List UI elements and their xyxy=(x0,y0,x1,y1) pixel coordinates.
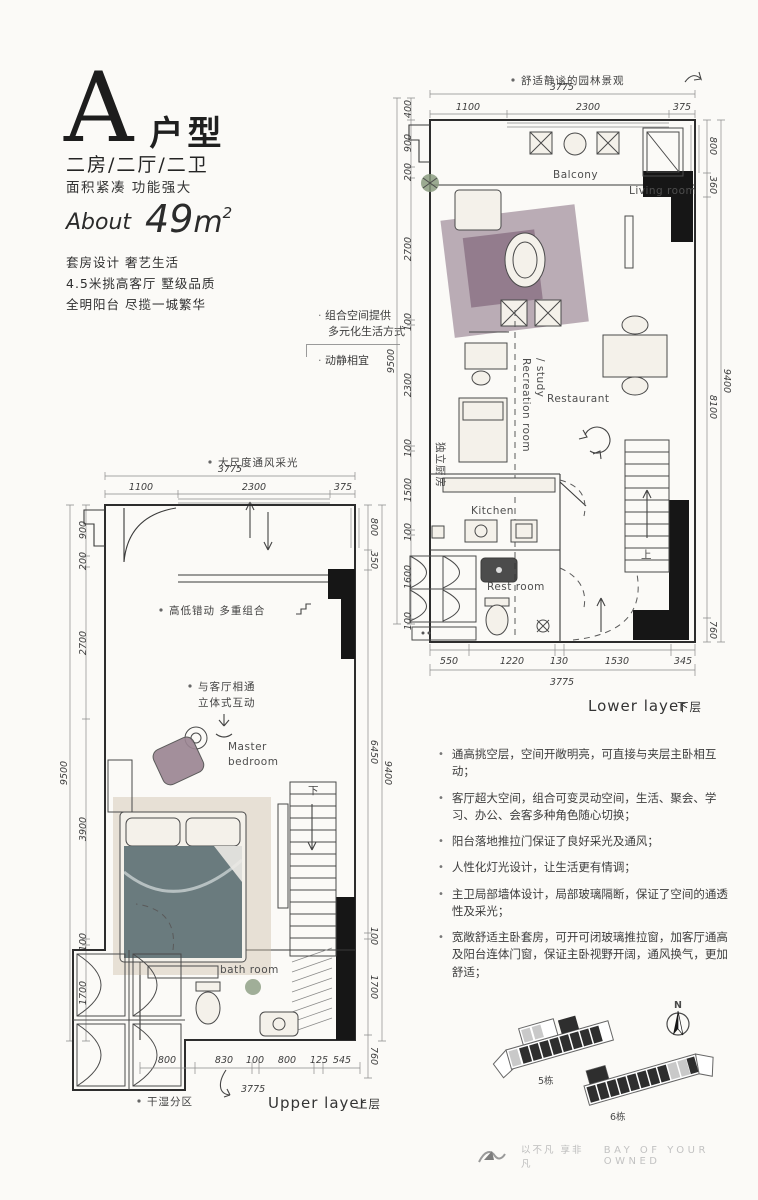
room-label-restaurant: Restaurant xyxy=(547,393,609,405)
dim-label: 1100 xyxy=(129,482,153,493)
room-label-recreation: Recreation room xyxy=(520,358,532,452)
counter xyxy=(443,478,555,492)
dim-label: 130 xyxy=(550,656,568,667)
dim-label: 100 xyxy=(246,1055,264,1066)
chair xyxy=(622,316,648,334)
wall-solid xyxy=(341,599,355,659)
arrow-up-icon xyxy=(597,598,605,632)
feature-bullets: •通高挑空层，空间开敞明亮，可直接与夹层主卧相互动； •客厅超大空间，组合可变灵… xyxy=(438,746,738,990)
dim-label: 100 xyxy=(403,439,414,457)
dim-label: 9400 xyxy=(382,761,393,785)
note-connect-1: 与客厅相通 xyxy=(198,680,256,693)
dim-label: 1220 xyxy=(500,656,524,667)
dim-label: 3900 xyxy=(78,817,89,841)
leader-line xyxy=(306,344,307,357)
dim-label: 100 xyxy=(403,313,414,331)
dim-label: 9400 xyxy=(721,369,732,393)
dim-label: 545 xyxy=(333,1055,351,1066)
bullet-item: •客厅超大空间，组合可变灵动空间，生活、聚会、学习、办公、会客多种角色随心切换； xyxy=(438,790,738,825)
wall-solid xyxy=(633,610,689,640)
dim-label: 1500 xyxy=(403,478,414,502)
building-6-label: 6栋 xyxy=(610,1111,626,1123)
stove xyxy=(511,520,537,542)
room-label-study: / study xyxy=(534,358,546,398)
study-furniture xyxy=(459,332,509,462)
bullet-item: •人性化灯光设计，让生活更有情调； xyxy=(438,859,738,876)
unit-type-letter: A xyxy=(64,64,133,152)
room-label-restroom: Rest room xyxy=(487,581,545,593)
duvet xyxy=(124,846,242,958)
pillow xyxy=(463,402,503,420)
dim-label: 760 xyxy=(707,621,718,639)
dim-label: 375 xyxy=(673,102,691,113)
wall-solid xyxy=(671,197,693,242)
table xyxy=(564,133,586,155)
lower-walls xyxy=(409,120,699,642)
dim-label: 1700 xyxy=(78,981,89,1005)
bullet-dot-icon xyxy=(511,78,514,81)
building-6 xyxy=(580,1036,718,1111)
dim-label: 2700 xyxy=(403,237,414,261)
toilet xyxy=(196,992,220,1024)
toilet-tank xyxy=(196,982,220,991)
dim-label: 6450 xyxy=(368,740,379,764)
room-label-master-1: Master xyxy=(228,741,267,753)
north-label: N xyxy=(674,1000,682,1011)
note-connect-2: 立体式互动 xyxy=(198,696,256,709)
feature-lines: 套房设计 奢艺生活 4.5米挑高客厅 墅级品质 全明阳台 尽揽一城繁华 xyxy=(66,252,215,315)
building-5-label: 5栋 xyxy=(538,1075,554,1087)
dim-label: 760 xyxy=(368,1047,379,1065)
stairs-lower: 上 xyxy=(625,440,669,572)
slogan-cn: 以不凡 享非凡 xyxy=(521,1142,589,1170)
room-label-kitchen: Kitchen xyxy=(471,505,514,517)
bullet-dot-icon: • xyxy=(438,886,444,921)
washbasin xyxy=(260,1012,298,1036)
pillow xyxy=(186,818,240,846)
bullet-dot-icon: • xyxy=(438,859,444,876)
bullet-dot-icon: · xyxy=(318,309,322,322)
arrow-down-icon xyxy=(308,804,316,850)
desk xyxy=(465,343,507,369)
dim-label: 100 xyxy=(78,933,89,951)
wardrobe-grid xyxy=(410,556,476,640)
upper-layer-label-en: Upper layer xyxy=(268,1094,367,1112)
dim-label: 800 xyxy=(368,518,379,536)
slogan-en: BAY OF YOUR OWNED xyxy=(604,1145,758,1167)
mini-stairs-icon xyxy=(296,604,311,614)
floorplan-page: A 户型 二房/二厅/二卫 面积紧凑 功能强大 About 49m2 套房设计 … xyxy=(0,0,758,1200)
dim-label: 2700 xyxy=(78,631,89,655)
dim-chain-right: 800 360 8100 760 9400 xyxy=(703,120,732,642)
area-line: About 49m2 xyxy=(66,200,232,238)
dim-label: 125 xyxy=(310,1055,328,1066)
cabinet xyxy=(432,526,444,538)
bullet-dot-icon: • xyxy=(438,929,444,981)
room-label-balcony: Balcony xyxy=(553,169,598,181)
dim-label: 200 xyxy=(78,552,89,570)
stairs-up-label: 上 xyxy=(641,549,653,561)
dim-label: 3775 xyxy=(241,1084,265,1095)
coffee-table xyxy=(505,233,545,287)
note-drywet: 干湿分区 xyxy=(147,1096,193,1108)
note-quiet: · 动静相宜 xyxy=(318,353,369,369)
dim-label: 800 xyxy=(707,137,718,155)
stairs-upper: 下 xyxy=(278,782,336,956)
tv-console xyxy=(625,216,633,268)
arrow-down-icon xyxy=(216,714,232,737)
dining-table xyxy=(603,335,667,377)
dining-furniture xyxy=(579,316,667,459)
dim-label: 2300 xyxy=(403,373,414,397)
arrow-up-icon xyxy=(643,490,651,538)
restroom-fixtures xyxy=(481,558,585,635)
dim-label: 1100 xyxy=(456,102,480,113)
unit-type-suffix: 户型 xyxy=(149,106,225,155)
lower-layer-label-cn: 下层 xyxy=(677,700,702,714)
dim-label: 360 xyxy=(707,176,718,194)
bullet-dot-icon xyxy=(188,684,191,687)
lower-layer-label-en: Lower layer xyxy=(588,697,686,715)
stair-rail xyxy=(278,804,288,908)
footer-brand: 以不凡 享非凡 BAY OF YOUR OWNED xyxy=(476,1142,758,1170)
wall-solid xyxy=(669,500,689,612)
dim-label: 550 xyxy=(440,656,458,667)
dim-label: 100 xyxy=(368,927,379,945)
dim-label: 1530 xyxy=(605,656,629,667)
dim-label: 800 xyxy=(158,1055,176,1066)
dim-label: 2300 xyxy=(576,102,600,113)
feature-line: 4.5米挑高客厅 墅级品质 xyxy=(66,273,215,294)
dim-label: 3775 xyxy=(550,82,574,93)
bullet-dot-icon: • xyxy=(438,790,444,825)
toilet xyxy=(486,605,508,635)
dim-label: 9500 xyxy=(59,761,70,785)
dim-label: 3775 xyxy=(550,677,574,688)
dim-label: 8100 xyxy=(707,395,718,419)
dim-label: 200 xyxy=(403,163,414,181)
room-label-bath: bath room xyxy=(220,964,279,976)
dim-label: 375 xyxy=(334,482,352,493)
note-combo: 高低错动 多重组合 xyxy=(169,604,265,617)
dim-label: 3775 xyxy=(218,464,242,475)
dim-label: 100 xyxy=(403,523,414,541)
room-label-living: Living room xyxy=(629,185,696,197)
dim-label: 9500 xyxy=(386,349,397,373)
lower-layer-plan: 舒适静谧的园林景观 3775 1100 2300 375 400 900 200… xyxy=(385,70,720,730)
dim-label: 800 xyxy=(278,1055,296,1066)
ventilation-arrows-icon xyxy=(246,502,272,550)
bullet-dot-icon xyxy=(137,1099,140,1102)
bullet-item: •通高挑空层，空间开敞明亮，可直接与夹层主卧相互动； xyxy=(438,746,738,781)
dim-label: 350 xyxy=(368,551,379,569)
bullet-dot-icon: · xyxy=(318,354,322,367)
chair xyxy=(472,371,490,385)
living-room-furniture xyxy=(440,190,633,338)
about-label: About xyxy=(66,210,131,238)
chair xyxy=(622,377,648,395)
entry xyxy=(573,574,638,640)
room-count-line: 二房/二厅/二卫 xyxy=(66,150,209,177)
note-kitchen: 独立厨房 xyxy=(434,442,447,488)
bullet-item: •主卫局部墙体设计，局部玻璃隔断，保证了空间的通透性及采光； xyxy=(438,886,738,921)
room-label-master-2: bedroom xyxy=(228,756,278,768)
door-swing xyxy=(573,574,638,640)
bullet-dot-icon xyxy=(159,608,162,611)
dim-label: 345 xyxy=(674,656,692,667)
dim-chain-bottom: 550 1220 130 1530 345 3775 xyxy=(430,644,695,688)
armchair xyxy=(455,190,501,230)
curl-arrow-icon xyxy=(220,1070,230,1097)
unit-type-title: A 户型 xyxy=(64,64,225,155)
compass-needle-icon xyxy=(673,1011,678,1035)
dim-label: 400 xyxy=(403,100,414,118)
site-plan: 5栋 6栋 N xyxy=(492,998,712,1138)
plant xyxy=(245,979,261,995)
bullet-item: •宽敞舒适主卧套房，可开可闭玻璃推拉窗，加客厅通高及阳台连体门窗，保证主卧视野开… xyxy=(438,929,738,981)
feature-line: 套房设计 奢艺生活 xyxy=(66,252,215,273)
pillow xyxy=(126,818,180,846)
brand-logo-icon xyxy=(476,1146,506,1166)
area-value: 49m2 xyxy=(145,200,232,238)
dim-label: 1700 xyxy=(368,975,379,999)
curl-arrow-icon xyxy=(685,72,701,82)
sink xyxy=(465,520,497,542)
bullet-dot-icon xyxy=(208,460,211,463)
tagline: 面积紧凑 功能强大 xyxy=(66,176,192,196)
bullet-dot-icon: • xyxy=(438,833,444,850)
stairs-down-label: 下 xyxy=(308,785,320,797)
upper-layer-label-cn: 上层 xyxy=(356,1097,381,1111)
door-swing xyxy=(560,568,585,612)
wall-solid xyxy=(328,569,355,599)
entry-door xyxy=(124,508,176,562)
bullet-item: •阳台落地推拉门保证了良好采光及通风； xyxy=(438,833,738,850)
dim-chain-right: 800 350 6450 100 1700 760 9400 xyxy=(364,505,393,1078)
feature-line: 全明阳台 尽揽一城繁华 xyxy=(66,294,215,315)
dim-label: 830 xyxy=(215,1055,233,1066)
wall-solid xyxy=(336,897,355,1040)
dim-label: 1600 xyxy=(403,565,414,589)
rotate-arrows-icon xyxy=(579,427,610,459)
dim-label: 2300 xyxy=(242,482,266,493)
north-compass: N xyxy=(667,1000,689,1035)
upper-layer-plan: 大尺度通风采光 3775 1100 2300 375 900 200 2700 … xyxy=(28,442,393,1132)
bullet-dot-icon: • xyxy=(438,746,444,781)
